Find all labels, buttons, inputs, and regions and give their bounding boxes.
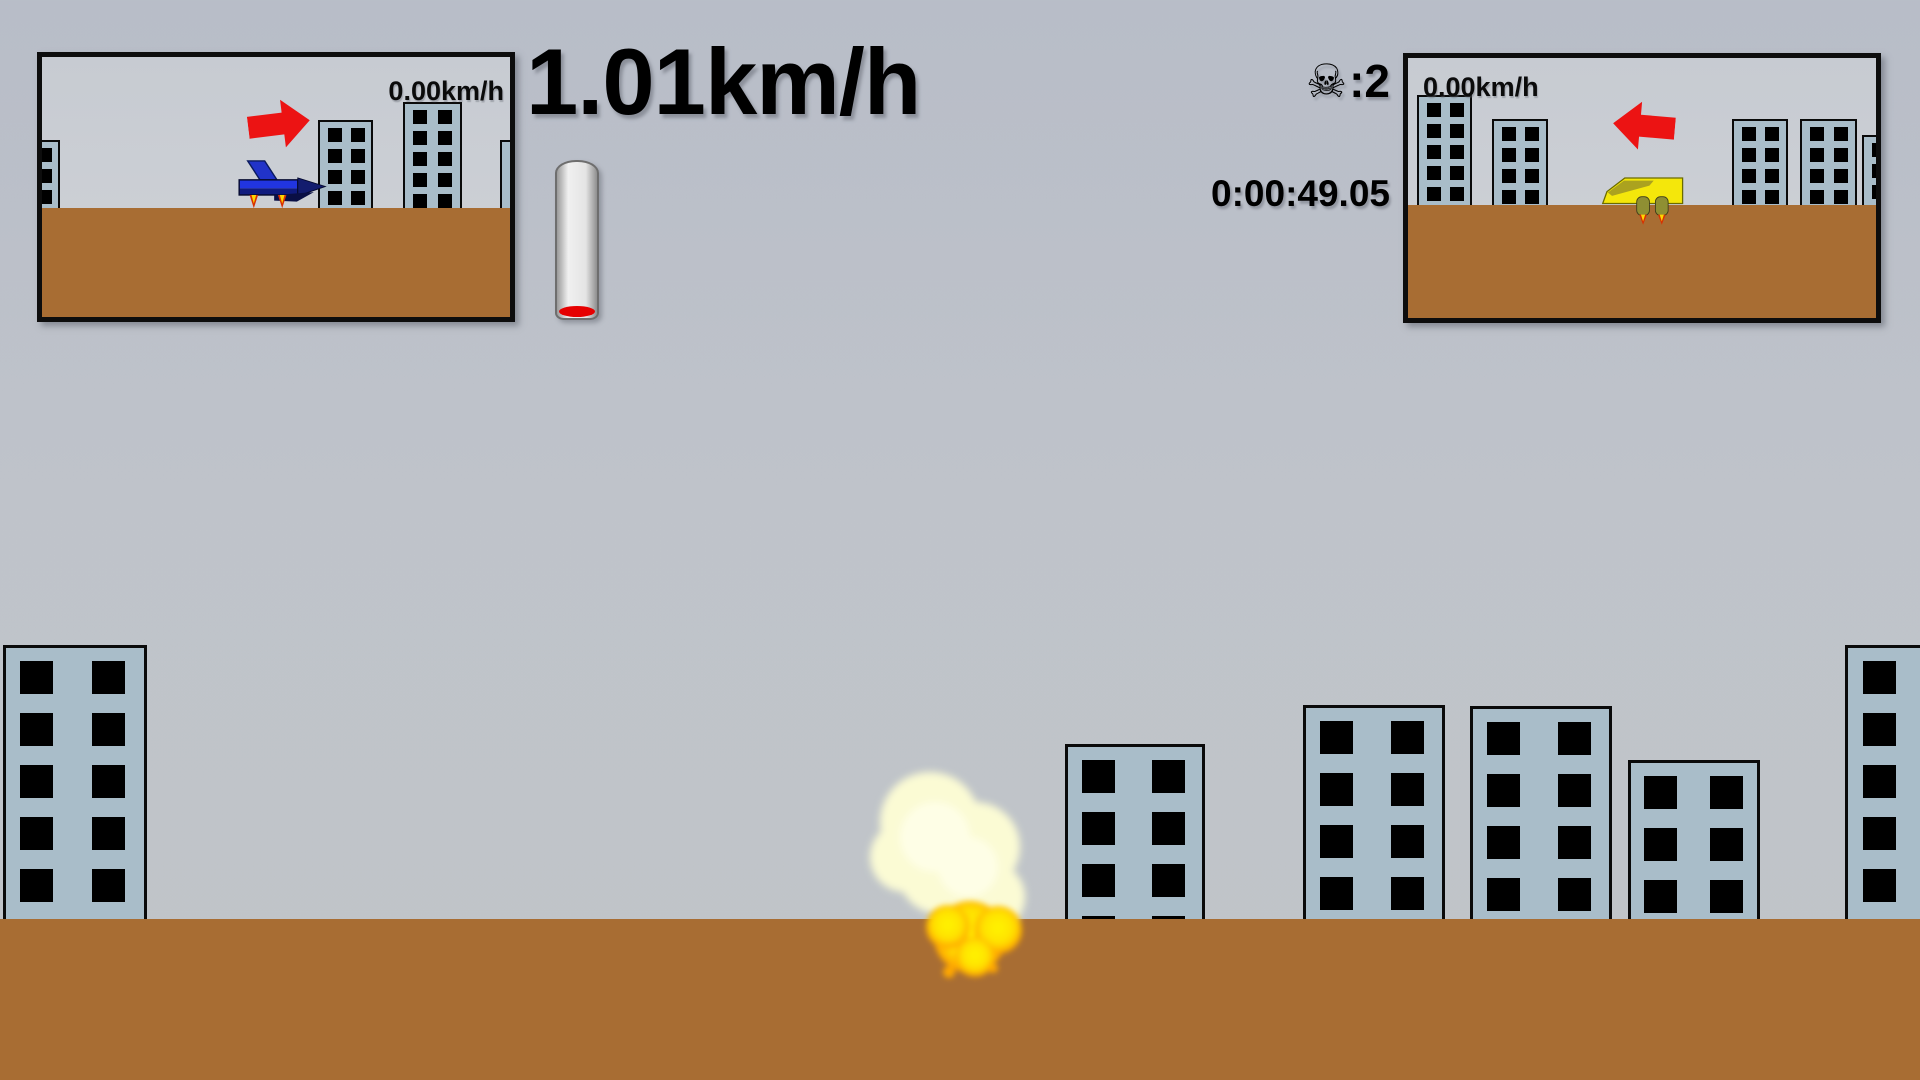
building-window [1872,185,1881,199]
building-window [1391,721,1424,754]
building-window [1834,148,1848,162]
building-window [1152,864,1185,897]
building-window [1810,127,1824,141]
building-window [413,131,427,145]
building-window [20,713,53,746]
building [37,140,60,214]
building-window [38,148,52,162]
fuel-level-indicator [559,306,595,317]
building-window [1742,148,1756,162]
building-window [1427,124,1441,138]
death-counter-separator: : [1349,54,1364,108]
building-window [20,765,53,798]
building-window [92,869,125,902]
building-window [438,152,452,166]
building-window [92,713,125,746]
minimap-player2: 0.00km/h [1403,53,1881,323]
building-window [1810,148,1824,162]
building-window [1863,869,1896,902]
building-window [510,190,515,204]
race-timer: 0:00:49.05 [1211,173,1390,215]
building-window [1558,878,1591,911]
building-window [1450,124,1464,138]
building-window [1558,826,1591,859]
hovervan-flame [1658,215,1666,225]
building [1845,645,1920,925]
building [403,102,462,214]
building [3,645,147,925]
building-window [20,869,53,902]
building-window [1082,864,1115,897]
building [1628,760,1760,925]
building-window [1558,722,1591,755]
hovervan-flame [1639,215,1647,225]
building-window [351,128,365,142]
building-window [1863,713,1896,746]
minimap-ground [42,208,510,317]
building-window [1320,773,1353,806]
building-window [38,169,52,183]
building-window [438,110,452,124]
building-window [1863,661,1896,694]
jet-flame [250,195,259,208]
building-window [1427,166,1441,180]
building-window [413,173,427,187]
building-window [1525,148,1539,162]
building-window [351,170,365,184]
building-window [1450,166,1464,180]
building-window [1765,148,1779,162]
building-window [1502,190,1516,204]
building-window [510,148,515,162]
building-window [1320,721,1353,754]
building-window [1525,190,1539,204]
building [500,140,515,214]
jet-flame [278,195,287,208]
building-window [438,194,452,208]
building [1303,705,1445,925]
death-counter-value: 2 [1364,54,1390,108]
building-window [1152,760,1185,793]
building-window [1502,169,1516,183]
building-window [1644,828,1677,861]
building [1065,744,1205,925]
building-window [1450,103,1464,117]
building-window [1427,145,1441,159]
building-window [328,128,342,142]
building-window [1487,878,1520,911]
building-window [1742,169,1756,183]
building-window [1742,190,1756,204]
building-window [1525,169,1539,183]
yellow-hovervan-sprite [1601,170,1686,226]
building-window [1450,145,1464,159]
building-window [1863,765,1896,798]
building [1800,119,1857,211]
building-window [1872,164,1881,178]
building-window [438,173,452,187]
building-window [20,817,53,850]
building-window [1872,143,1881,157]
building-window [1558,774,1591,807]
building-window [1320,877,1353,910]
building-window [1644,880,1677,913]
explosion-fireball [850,752,1070,992]
building-window [413,194,427,208]
building-window [1320,825,1353,858]
building [1417,95,1472,211]
building-window [1082,812,1115,845]
building-window [20,661,53,694]
player-speed-readout: 1.01km/h [526,28,920,136]
building-window [1152,812,1185,845]
building-window [1487,774,1520,807]
fuel-gauge [555,160,599,320]
building-window [1810,169,1824,183]
building-window [1863,817,1896,850]
building-window [1742,127,1756,141]
minimap-speed-readout: 0.00km/h [1423,72,1539,103]
minimap-speed-readout: 0.00km/h [388,76,504,107]
building-window [1834,169,1848,183]
building-window [1427,103,1441,117]
building-window [1710,880,1743,913]
building-window [92,765,125,798]
building [1732,119,1788,211]
building-window [1810,190,1824,204]
building-window [1644,776,1677,809]
building-window [1391,773,1424,806]
building-window [1834,127,1848,141]
building-window [413,110,427,124]
building-window [1765,169,1779,183]
minimap-player1: 0.00km/h [37,52,515,322]
building [1862,135,1881,211]
building-window [1450,187,1464,201]
building-window [1391,877,1424,910]
building-window [1834,190,1848,204]
building-window [1487,722,1520,755]
explosion-fire-core [926,901,1022,978]
building-window [1502,148,1516,162]
building-window [1710,776,1743,809]
direction-arrow-right-icon [245,96,312,151]
building [1470,706,1612,925]
building-window [510,169,515,183]
blue-jet-sprite [238,160,333,212]
building-window [38,190,52,204]
building-window [1502,127,1516,141]
building-window [1765,190,1779,204]
death-counter: ☠: 2 [1306,54,1390,108]
direction-arrow-left-icon [1611,99,1677,152]
building-window [351,191,365,205]
building-window [1765,127,1779,141]
building-window [351,149,365,163]
building-window [1427,187,1441,201]
building-window [1082,760,1115,793]
building-window [1487,826,1520,859]
building-window [92,661,125,694]
building-window [1710,828,1743,861]
building-window [92,817,125,850]
skull-crossbones-icon: ☠ [1306,54,1347,108]
building-window [1525,127,1539,141]
building [1492,119,1548,211]
building-window [438,131,452,145]
building-window [1391,825,1424,858]
building-window [413,152,427,166]
